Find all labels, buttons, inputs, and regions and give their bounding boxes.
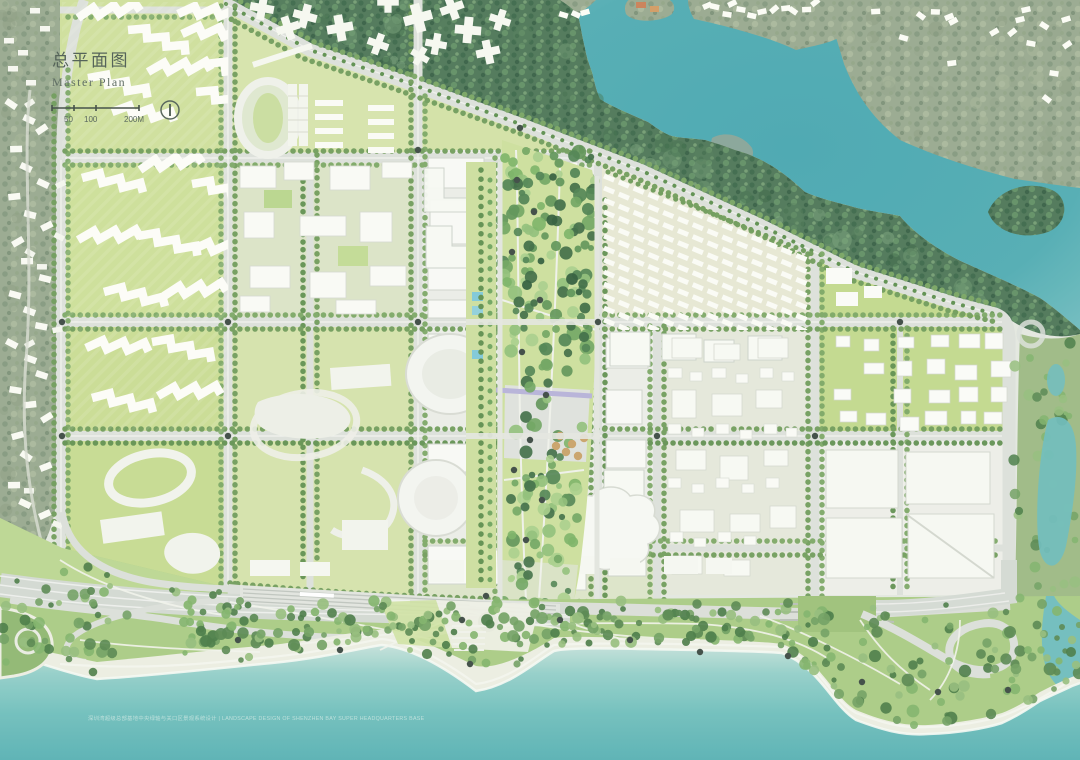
svg-text:100: 100 [84, 115, 98, 124]
svg-text:深圳湾超级总部基地中央绿轴与关口区景观系统设计 | LAND: 深圳湾超级总部基地中央绿轴与关口区景观系统设计 | LANDSCAPE DESI… [88, 714, 425, 722]
svg-text:Master Plan: Master Plan [52, 75, 126, 89]
svg-text:总平面图: 总平面图 [52, 51, 130, 70]
svg-text:50: 50 [64, 115, 73, 124]
svg-text:200M: 200M [124, 115, 144, 124]
